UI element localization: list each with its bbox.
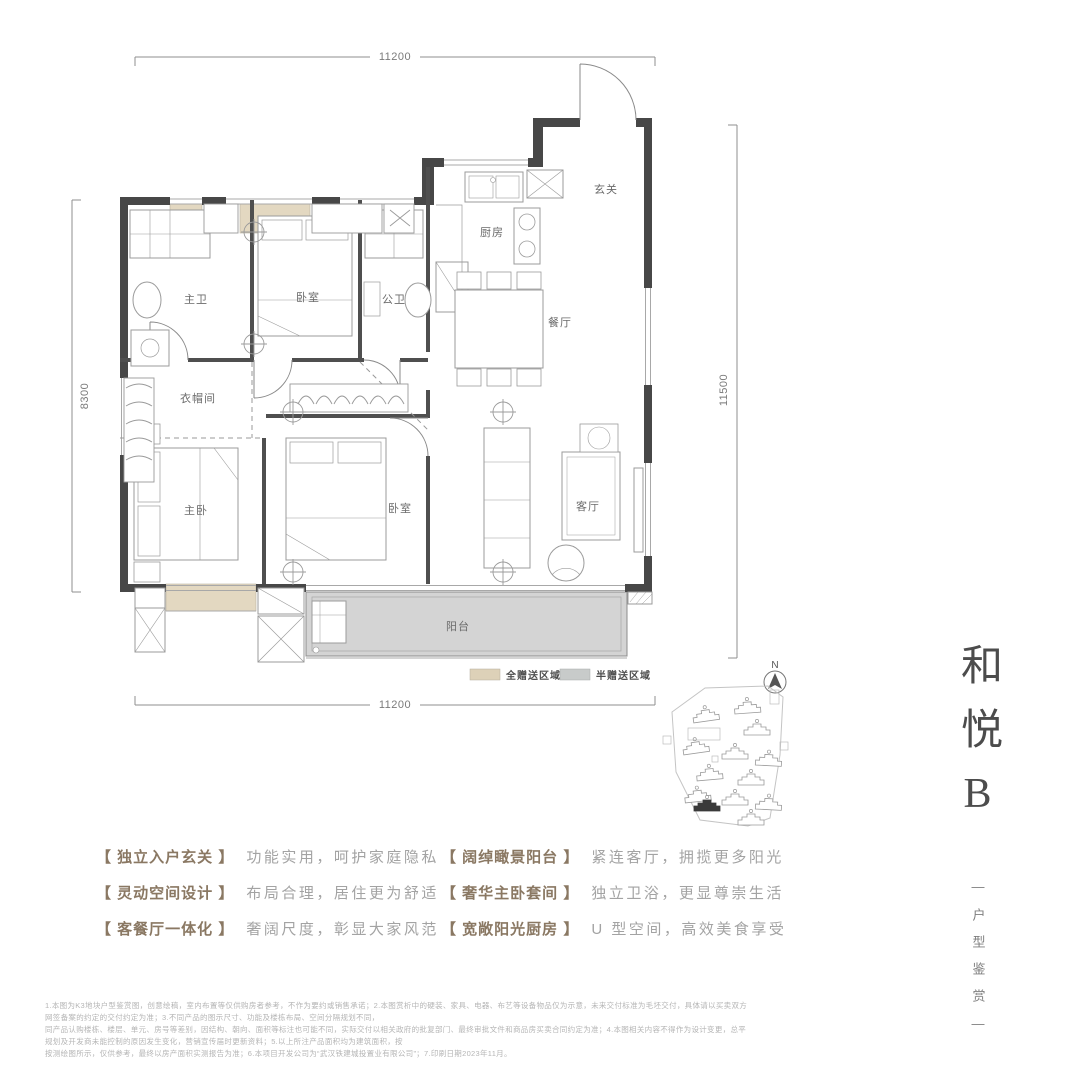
room-label-entry: 玄关	[594, 182, 618, 196]
siteplan-inset	[663, 686, 788, 826]
door-entry	[580, 64, 636, 120]
disclaimer-line: 1.本图为K3地块户型鉴赏图，创意绘稿，室内布置等仅供购房者参考，不作为要约或销…	[45, 1000, 750, 1024]
compass-n-label: N	[771, 660, 778, 671]
tv-cabinet	[634, 468, 643, 552]
dimension-top: 11200	[379, 51, 411, 63]
gift-areas	[166, 204, 627, 656]
room-label-master-bedroom: 主卧	[184, 504, 208, 517]
door-bedroom-second	[390, 418, 428, 456]
feature-desc: 独立卫浴，更显尊崇生活	[591, 882, 784, 903]
feature-item: 【 客餐厅一体化 】 奢阔尺度，彰显大家风范	[96, 918, 441, 939]
feature-title: 【 独立入户玄关 】	[96, 846, 234, 867]
disclaimer-line: 按测绘图所示，仅供参考，最终以房产面积实测报告为准；6.本项目开发公司为“武汉铁…	[45, 1048, 750, 1060]
title-subtitle-block: —户型鉴赏—	[946, 872, 1010, 1052]
disclaimer-line: 同产品认购楼栋、楼层、单元、房号等差别，因结构、朝向、面积等标注也可能不同，实际…	[45, 1024, 750, 1048]
sofa	[484, 428, 530, 568]
room-label-master-bath: 主卫	[184, 293, 208, 306]
vanity-master	[131, 330, 169, 366]
room-label-balcony: 阳台	[446, 619, 470, 633]
feature-desc: 紧连客厅，拥揽更多阳光	[591, 846, 784, 867]
room-label-guest-bath: 公卫	[382, 294, 406, 306]
balcony-seat	[312, 601, 346, 643]
feature-item: 【 宽敞阳光厨房 】 U 型空间，高效美食享受	[441, 918, 786, 939]
compass-icon: N	[764, 660, 786, 693]
room-label-bedroom-top: 卧室	[296, 290, 320, 304]
lounge-chair	[548, 545, 584, 581]
feature-item: 【 奢华主卧套间 】 独立卫浴，更显尊崇生活	[441, 882, 786, 903]
kitchen-stove	[514, 208, 540, 264]
feature-title: 【 奢华主卧套间 】	[441, 882, 579, 903]
feature-title: 【 客餐厅一体化 】	[96, 918, 234, 939]
legend: 全赠送区域 半赠送区域	[470, 669, 651, 682]
room-label-dining: 餐厅	[548, 315, 572, 329]
feature-desc: 功能实用，呵护家庭隐私	[246, 846, 439, 867]
feature-title: 【 灵动空间设计 】	[96, 882, 234, 903]
feature-title: 【 阔绰瞰景阳台 】	[441, 846, 579, 867]
door-bedroom-top	[254, 360, 292, 398]
room-label-kitchen: 厨房	[480, 226, 504, 239]
dimension-right: 11500	[718, 374, 730, 406]
feature-desc: U 型空间，高效美食享受	[591, 918, 786, 939]
room-label-bedroom-second: 卧室	[388, 501, 412, 515]
legend-swatch-half-gift	[560, 669, 590, 680]
feature-desc: 奢阔尺度，彰显大家风范	[246, 918, 439, 939]
gift-area-bay	[166, 584, 256, 611]
feature-desc: 布局合理，居住更为舒适	[246, 882, 439, 903]
dining-table	[455, 290, 543, 368]
toilet-master	[133, 282, 161, 318]
feature-item: 【 灵动空间设计 】 布局合理，居住更为舒适	[96, 882, 441, 903]
balcony-hatch	[628, 592, 652, 604]
feature-list: 【 独立入户玄关 】 功能实用，呵护家庭隐私 【 灵动空间设计 】 布局合理，居…	[96, 846, 786, 939]
feature-item: 【 独立入户玄关 】 功能实用，呵护家庭隐私	[96, 846, 441, 867]
room-label-living: 客厅	[576, 499, 600, 513]
dimension-bottom: 11200	[379, 699, 411, 711]
title-block: 和悦B	[946, 626, 1010, 856]
plan-subtitle: —户型鉴赏—	[969, 872, 988, 1052]
room-label-cloakroom: 衣帽间	[180, 391, 216, 405]
coffee-table	[562, 452, 620, 540]
feature-title: 【 宽敞阳光厨房 】	[441, 918, 579, 939]
legend-swatch-full-gift	[470, 669, 500, 680]
plan-title: 和悦B	[948, 626, 1009, 856]
disclaimer: 1.本图为K3地块户型鉴赏图，创意绘稿，室内布置等仅供购房者参考，不作为要约或销…	[45, 1000, 750, 1060]
dimension-left: 8300	[79, 383, 91, 409]
legend-label-half-gift: 半赠送区域	[596, 669, 651, 682]
equip-box-1	[135, 588, 165, 608]
toilet-guest	[405, 283, 431, 317]
legend-label-full-gift: 全赠送区域	[505, 669, 561, 682]
feature-item: 【 阔绰瞰景阳台 】 紧连客厅，拥揽更多阳光	[441, 846, 786, 867]
